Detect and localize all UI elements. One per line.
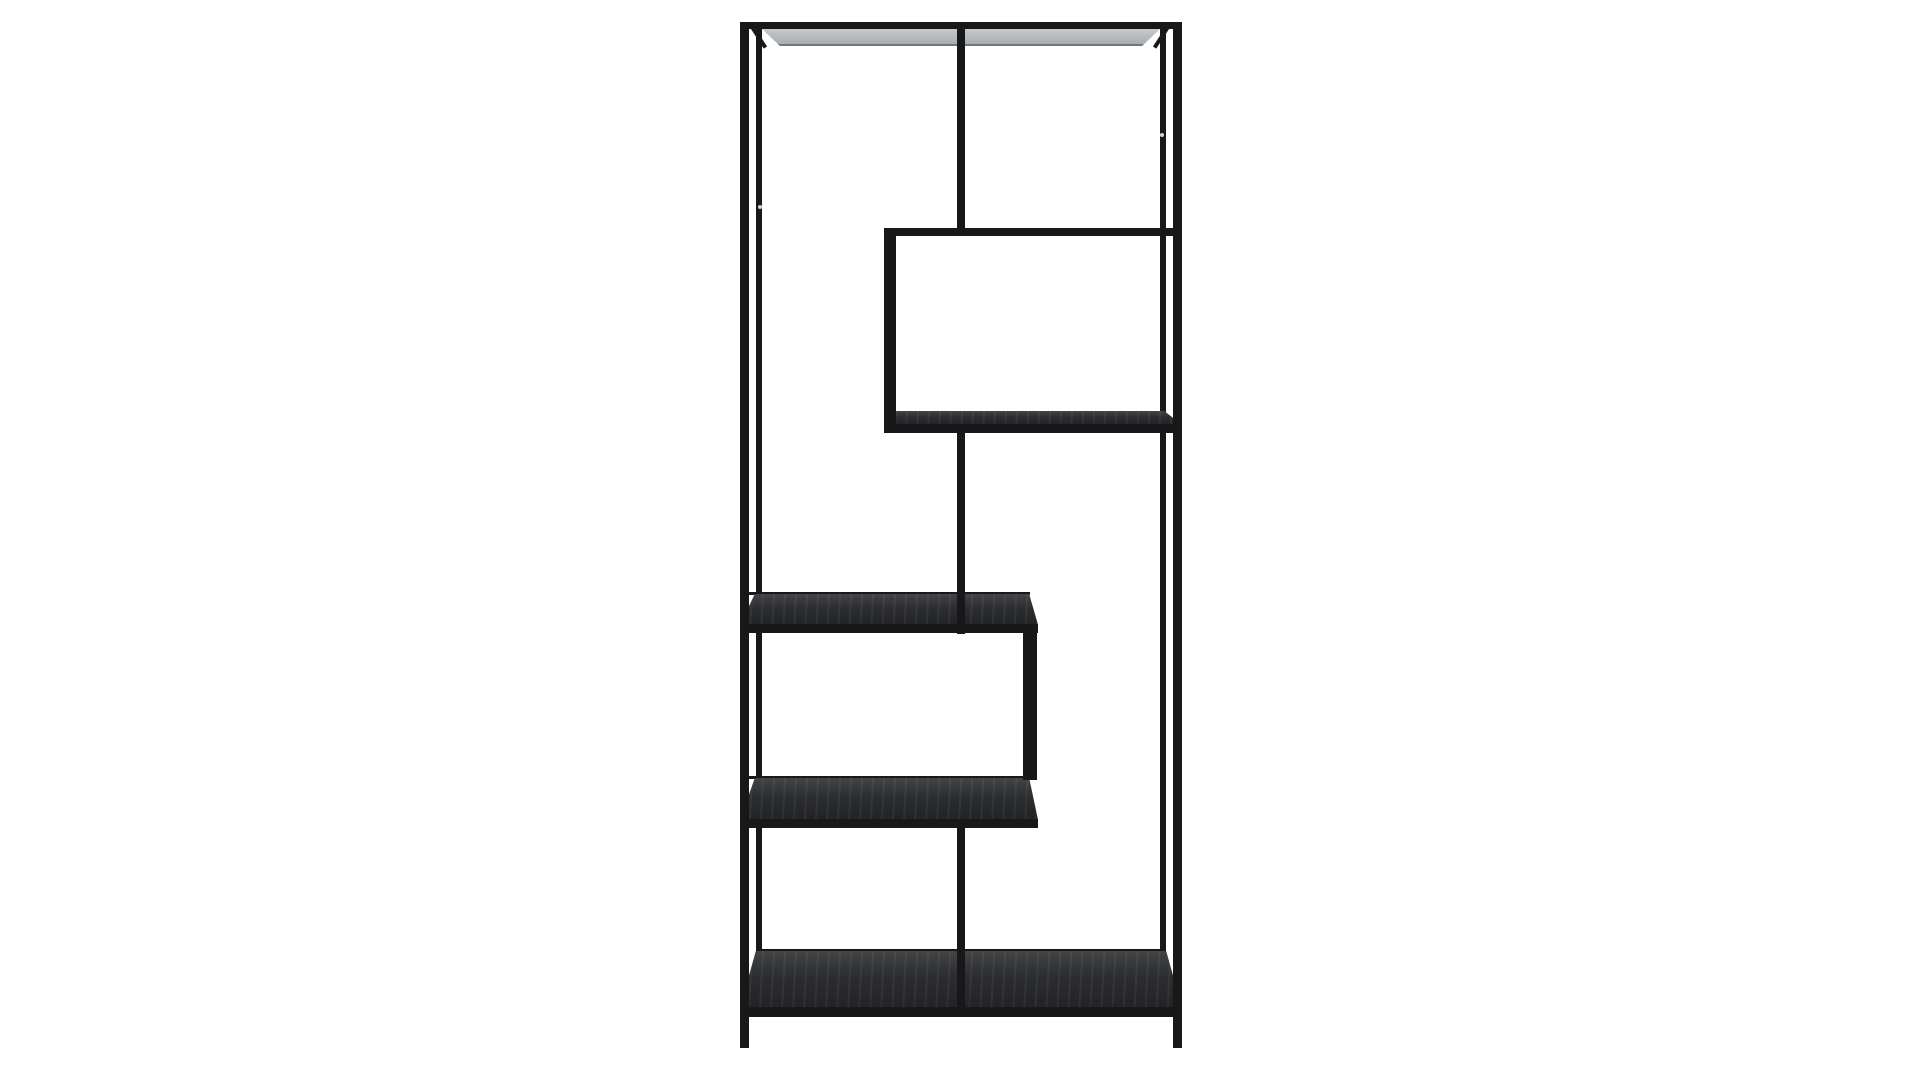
mid-shelf-front-rail [740, 624, 1038, 633]
upper-divider-post [957, 28, 965, 229]
middle-divider-post [957, 430, 965, 634]
box-shelf-bottom-rail [884, 424, 1182, 433]
back-right-post [1160, 28, 1166, 950]
bookshelf-scene [0, 0, 1920, 1080]
lower-shelf-surface [740, 778, 1038, 820]
lower-shelf-front-rail [740, 819, 1038, 828]
mid-shelf-surface [740, 594, 1038, 625]
box-shelf-bottom-surface [884, 411, 1182, 425]
lower-divider-post [957, 828, 965, 1009]
front-right-post [1173, 22, 1182, 1048]
lower-box-right-wall [1023, 630, 1037, 780]
front-left-post [740, 22, 749, 1048]
product-photo [0, 0, 1920, 1080]
box-shelf-left-wall [884, 228, 896, 433]
screw-dot-right [1160, 133, 1164, 137]
box-shelf-top-rail [884, 228, 1182, 236]
screw-dot-left [758, 205, 762, 209]
